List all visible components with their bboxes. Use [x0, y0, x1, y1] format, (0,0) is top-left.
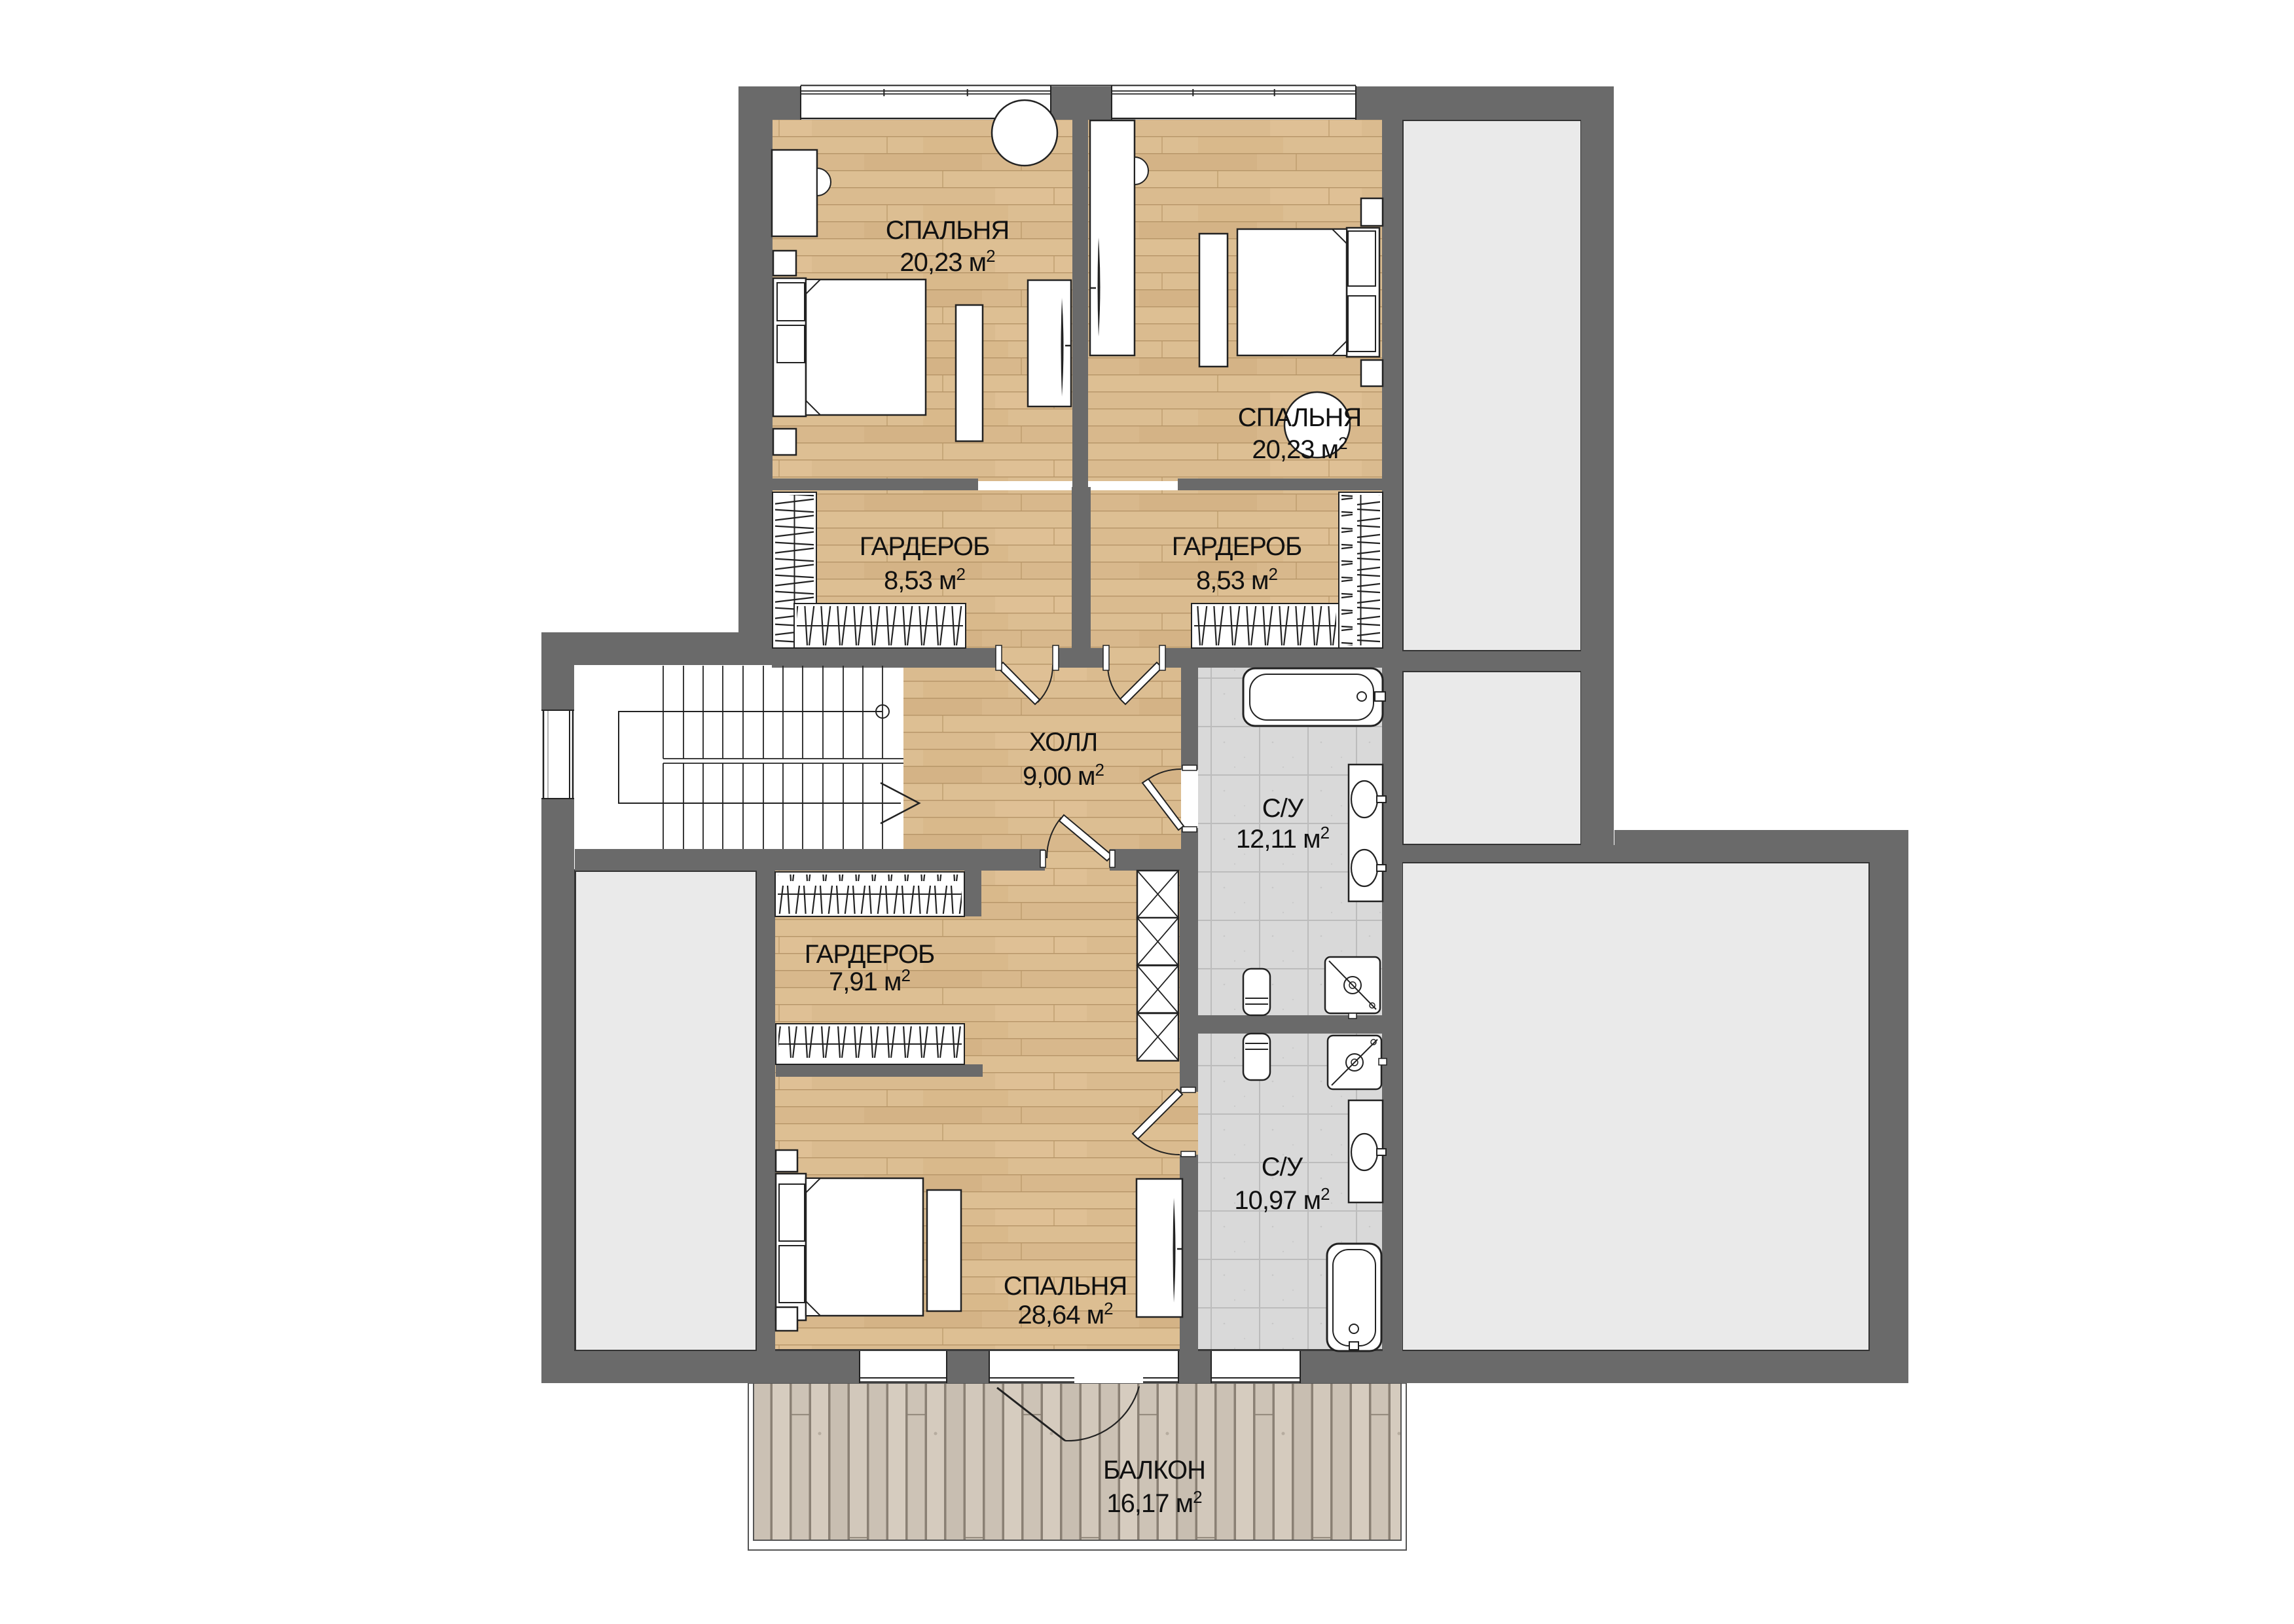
svg-text:8,53 м2: 8,53 м2 [1196, 564, 1277, 595]
svg-text:16,17 м2: 16,17 м2 [1106, 1487, 1202, 1518]
svg-text:ХОЛЛ: ХОЛЛ [1029, 728, 1098, 757]
svg-text:С/У: С/У [1262, 794, 1304, 823]
svg-text:С/У: С/У [1262, 1153, 1303, 1182]
svg-text:7,91 м2: 7,91 м2 [829, 965, 910, 996]
svg-text:СПАЛЬНЯ: СПАЛЬНЯ [886, 216, 1009, 245]
svg-text:ГАРДЕРОБ: ГАРДЕРОБ [805, 940, 935, 969]
svg-text:СПАЛЬНЯ: СПАЛЬНЯ [1004, 1272, 1127, 1301]
svg-text:20,23 м2: 20,23 м2 [1252, 433, 1347, 464]
svg-text:9,00 м2: 9,00 м2 [1023, 760, 1104, 791]
svg-text:БАЛКОН: БАЛКОН [1103, 1456, 1205, 1485]
svg-text:10,97 м2: 10,97 м2 [1234, 1184, 1330, 1215]
svg-text:12,11 м2: 12,11 м2 [1236, 823, 1330, 854]
svg-text:СПАЛЬНЯ: СПАЛЬНЯ [1238, 403, 1361, 432]
svg-text:8,53 м2: 8,53 м2 [884, 564, 965, 595]
svg-text:ГАРДЕРОБ: ГАРДЕРОБ [1172, 532, 1302, 561]
svg-text:20,23 м2: 20,23 м2 [900, 246, 995, 277]
svg-text:ГАРДЕРОБ: ГАРДЕРОБ [860, 532, 990, 561]
svg-text:28,64 м2: 28,64 м2 [1017, 1299, 1113, 1329]
